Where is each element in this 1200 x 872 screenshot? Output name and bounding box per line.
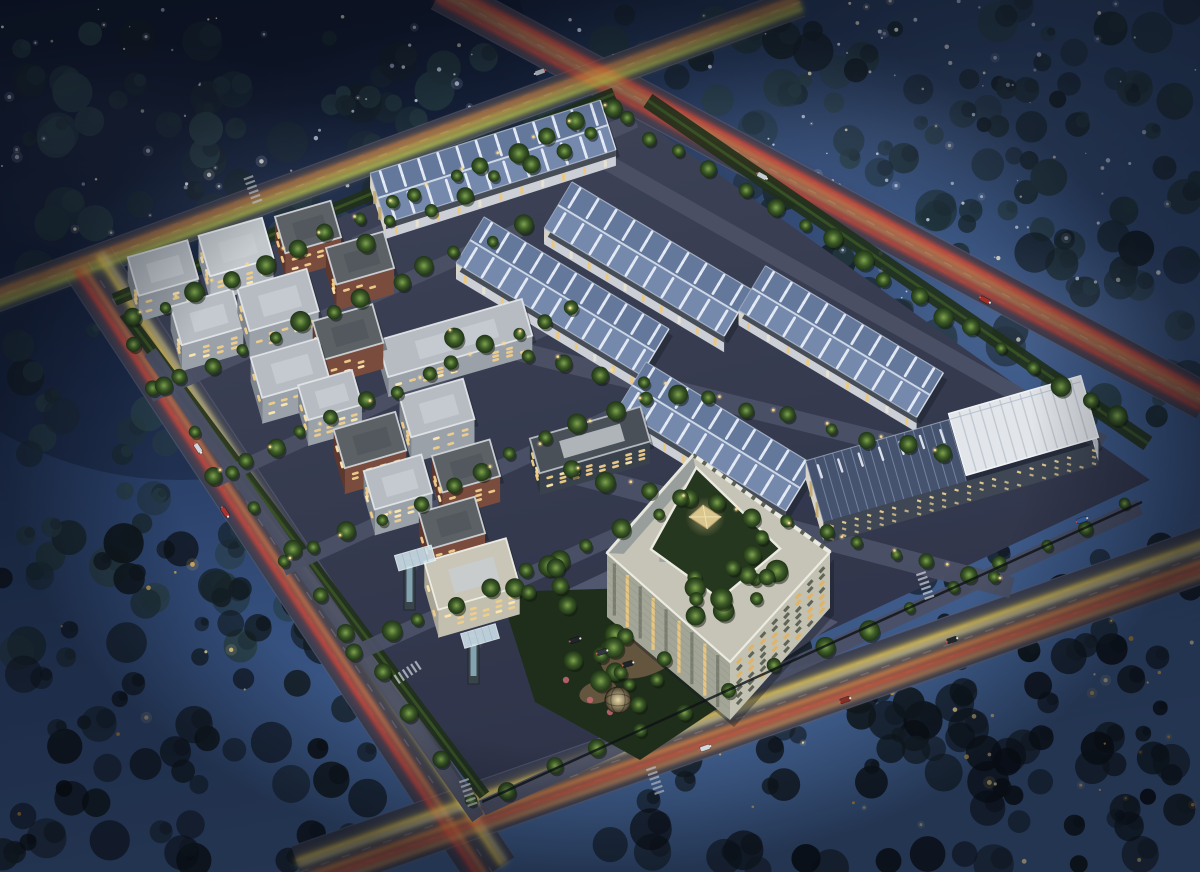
scene-canvas	[0, 0, 1200, 872]
aerial-industrial-park-rendering	[0, 0, 1200, 872]
vignette-layer	[0, 0, 1200, 872]
